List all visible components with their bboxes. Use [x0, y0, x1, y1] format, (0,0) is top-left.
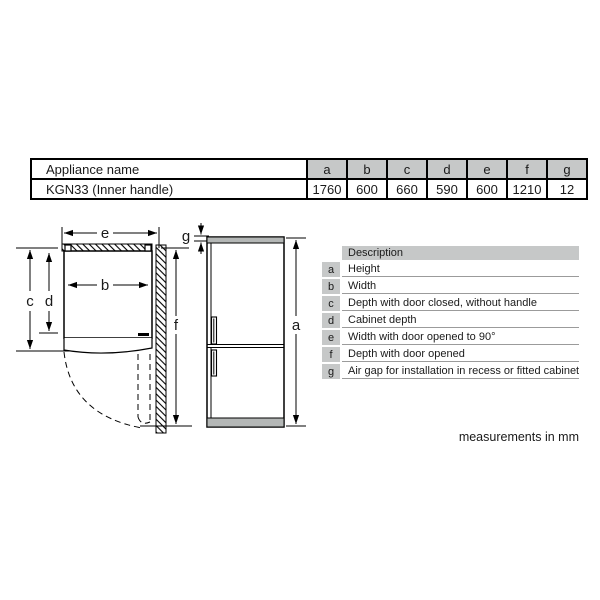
dimension-a: a [286, 238, 306, 426]
value-g: 12 [547, 179, 587, 199]
dim-label-g: g [182, 228, 190, 245]
door-closed-top-view [64, 338, 152, 353]
description-row-f: f Depth with door opened [322, 347, 579, 362]
description-table: Description a Height b Width c Depth wit… [320, 244, 581, 381]
dimension-table-value-row: KGN33 (Inner handle) 1760 600 660 590 60… [31, 179, 587, 199]
desc-a: Height [342, 262, 579, 277]
appliance-name-header: Appliance name [31, 159, 307, 179]
dimension-f: f [174, 250, 179, 424]
key-g: g [322, 364, 340, 379]
appliance-name-cell: KGN33 (Inner handle) [31, 179, 307, 199]
key-a: a [322, 262, 340, 277]
wall-top-hatched [62, 244, 152, 251]
description-row-b: b Width [322, 279, 579, 294]
desc-c: Depth with door closed, without handle [342, 296, 579, 311]
value-c: 660 [387, 179, 427, 199]
fridge-front-outline [207, 237, 284, 427]
cabinet-top-view [64, 251, 152, 338]
door-swing-arc [64, 352, 142, 428]
right-hinge [145, 245, 151, 251]
dimension-g: g [182, 223, 209, 254]
dimension-d: d [45, 253, 53, 331]
col-header-d: d [427, 159, 467, 179]
dim-label-e: e [101, 225, 109, 242]
desc-d: Cabinet depth [342, 313, 579, 328]
front-view: a [207, 237, 306, 427]
dimension-e: e [64, 225, 157, 242]
value-a: 1760 [307, 179, 347, 199]
door-inner-handle-mark [138, 333, 149, 336]
col-header-b: b [347, 159, 387, 179]
col-header-g: g [547, 159, 587, 179]
appliance-dimension-drawing: e b c d f [0, 220, 320, 450]
description-row-g: g Air gap for installation in recess or … [322, 364, 579, 379]
desc-f: Depth with door opened [342, 347, 579, 362]
dimension-table-header-row: Appliance name a b c d e f g [31, 159, 587, 179]
fridge-bottom-plinth [207, 418, 284, 427]
description-header-spacer [322, 246, 340, 260]
dimension-table: Appliance name a b c d e f g KGN33 (Inne… [30, 158, 588, 200]
col-header-a: a [307, 159, 347, 179]
desc-e: Width with door opened to 90° [342, 330, 579, 345]
dim-label-f: f [174, 317, 179, 334]
key-d: d [322, 313, 340, 328]
top-view: e b c d f [16, 223, 209, 433]
description-header: Description [342, 246, 579, 260]
wall-right-hatched [156, 245, 166, 433]
left-hinge [65, 245, 71, 251]
desc-g: Air gap for installation in recess or fi… [342, 364, 579, 379]
key-b: b [322, 279, 340, 294]
value-b: 600 [347, 179, 387, 199]
key-f: f [322, 347, 340, 362]
dim-label-b: b [101, 277, 109, 294]
desc-b: Width [342, 279, 579, 294]
spec-sheet-page: Appliance name a b c d e f g KGN33 (Inne… [0, 0, 600, 600]
fridge-top-trim [207, 237, 284, 243]
key-e: e [322, 330, 340, 345]
value-d: 590 [427, 179, 467, 199]
col-header-c: c [387, 159, 427, 179]
dim-label-c: c [26, 293, 34, 310]
description-row-a: a Height [322, 262, 579, 277]
value-e: 600 [467, 179, 507, 199]
description-row-e: e Width with door opened to 90° [322, 330, 579, 345]
key-c: c [322, 296, 340, 311]
dim-label-a: a [292, 317, 301, 334]
description-row-d: d Cabinet depth [322, 313, 579, 328]
col-header-e: e [467, 159, 507, 179]
dim-label-d: d [45, 293, 53, 310]
description-header-row: Description [322, 246, 579, 260]
col-header-f: f [507, 159, 547, 179]
units-footnote: measurements in mm [459, 430, 579, 444]
door-open-bottom-curve [138, 417, 150, 423]
dimension-c: c [26, 250, 34, 349]
value-f: 1210 [507, 179, 547, 199]
description-row-c: c Depth with door closed, without handle [322, 296, 579, 311]
